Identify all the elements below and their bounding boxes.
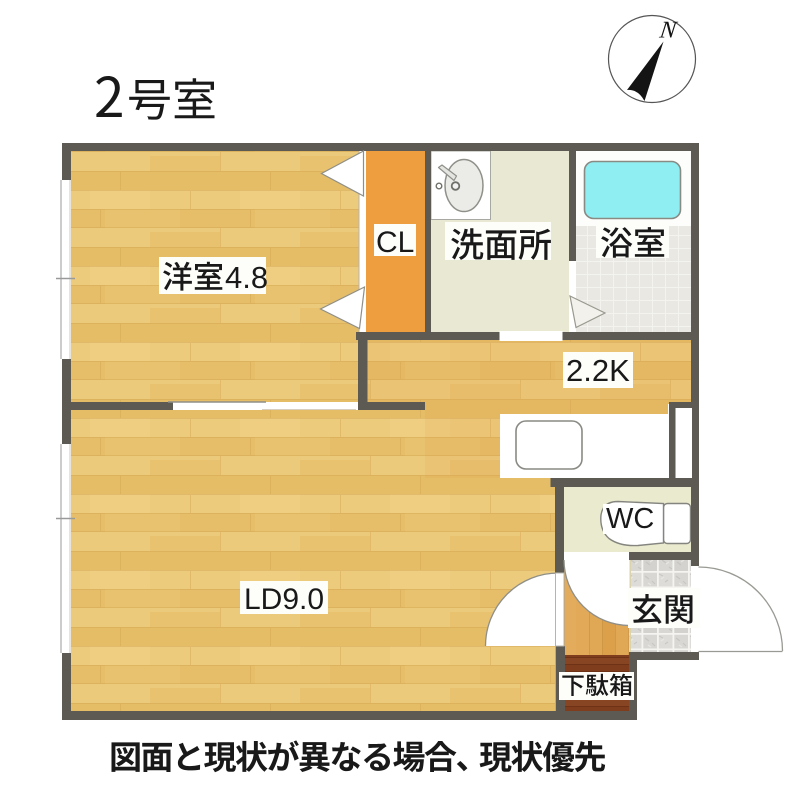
svg-text:WC: WC [606,503,654,535]
svg-text:LD9.0: LD9.0 [244,583,324,616]
svg-text:2.2K: 2.2K [566,353,630,388]
svg-text:CL: CL [376,226,414,259]
svg-text:4.8: 4.8 [225,260,268,295]
